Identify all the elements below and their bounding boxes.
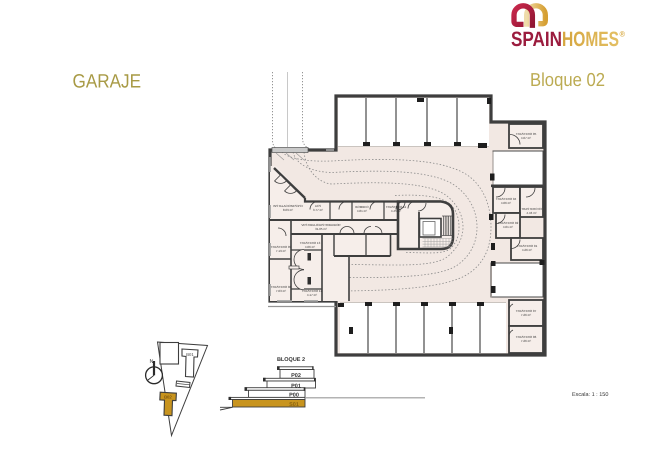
svg-text:HOMES: HOMES: [562, 28, 619, 51]
svg-text:4.07 m²: 4.07 m²: [521, 136, 531, 140]
svg-text:4.46 m²: 4.46 m²: [526, 211, 536, 215]
svg-text:4.06 m²: 4.06 m²: [501, 201, 511, 205]
svg-text:BLOQUE 2: BLOQUE 2: [277, 357, 305, 363]
svg-text:GARAJE: GARAJE: [73, 72, 142, 93]
svg-text:4.06 m²: 4.06 m²: [305, 245, 315, 249]
svg-text:B01: B01: [186, 352, 194, 357]
svg-text:8.69 m²: 8.69 m²: [283, 208, 293, 212]
svg-text:4.45 m²: 4.45 m²: [391, 209, 401, 213]
svg-text:3.77 m²: 3.77 m²: [313, 208, 323, 212]
svg-text:7.19 m²: 7.19 m²: [276, 249, 286, 253]
svg-text:Escala: 1 : 150: Escala: 1 : 150: [572, 392, 608, 398]
svg-text:Bloque 02: Bloque 02: [530, 69, 605, 90]
svg-text:4.26 m²: 4.26 m²: [522, 248, 532, 252]
svg-text:SPAIN: SPAIN: [511, 28, 562, 51]
svg-text:31.05 m²: 31.05 m²: [315, 227, 327, 231]
svg-text:7.26 m²: 7.26 m²: [521, 313, 531, 317]
svg-text:N: N: [150, 359, 154, 365]
svg-text:4.01 m²: 4.01 m²: [503, 225, 513, 229]
svg-text:4.17 m²: 4.17 m²: [307, 293, 317, 297]
svg-text:B02: B02: [164, 395, 172, 400]
svg-text:7.26 m²: 7.26 m²: [521, 339, 531, 343]
svg-text:4.81 m²: 4.81 m²: [357, 209, 367, 213]
svg-text:7.03 m²: 7.03 m²: [276, 289, 286, 293]
svg-text:®: ®: [620, 30, 626, 39]
svg-text:S01: S01: [289, 402, 299, 408]
